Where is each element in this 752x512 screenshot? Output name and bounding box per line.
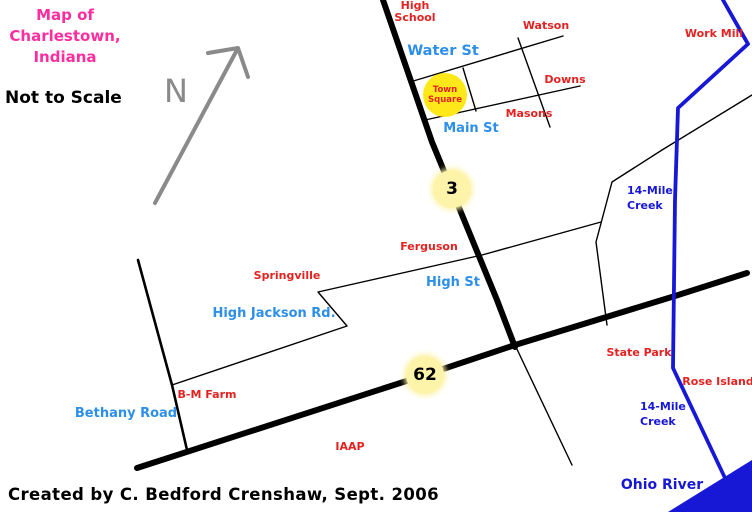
state-park-label: State Park [606, 347, 671, 359]
bethany-road-line [138, 260, 187, 450]
iaap-label: IAAP [335, 441, 364, 453]
map-geometry [0, 0, 752, 512]
high-jackson-high-st-road [172, 222, 601, 385]
town-square-marker: TownSquare [423, 73, 467, 117]
highway-3-marker: 3 [433, 170, 471, 208]
watson-label: Watson [523, 20, 569, 32]
ohio-river-label: Ohio River [621, 478, 703, 493]
map-title: Map ofCharlestown,Indiana [2, 5, 128, 68]
creek-upper-label: 14-MileCreek [627, 183, 673, 213]
ferguson-label: Ferguson [400, 241, 458, 253]
main-st-label: Main St [443, 122, 499, 136]
water-st-label: Water St [407, 44, 479, 58]
credit-text: Created by C. Bedford Crenshaw, Sept. 20… [8, 485, 439, 504]
springville-label: Springville [254, 270, 321, 282]
downs-label: Downs [544, 74, 585, 86]
south-road [515, 345, 572, 465]
scale-note: Not to Scale [5, 88, 122, 108]
rose-island-label: Rose Island [682, 376, 752, 388]
map-canvas: Map ofCharlestown,Indiana Not to Scale N… [0, 0, 752, 512]
bethany-road-label: Bethany Road [75, 407, 177, 421]
masons-label: Masons [506, 108, 553, 120]
creek-lower-label: 14-MileCreek [640, 399, 686, 429]
work-mill-label: Work Mill [685, 28, 743, 40]
compass-north-label: N [164, 72, 188, 110]
high-jackson-label: High Jackson Rd. [212, 307, 335, 321]
bm-farm-label: B-M Farm [178, 389, 237, 401]
high-school-label: HighSchool [394, 0, 435, 24]
highway-62-marker: 62 [406, 356, 444, 394]
high-st-label: High St [426, 276, 480, 290]
